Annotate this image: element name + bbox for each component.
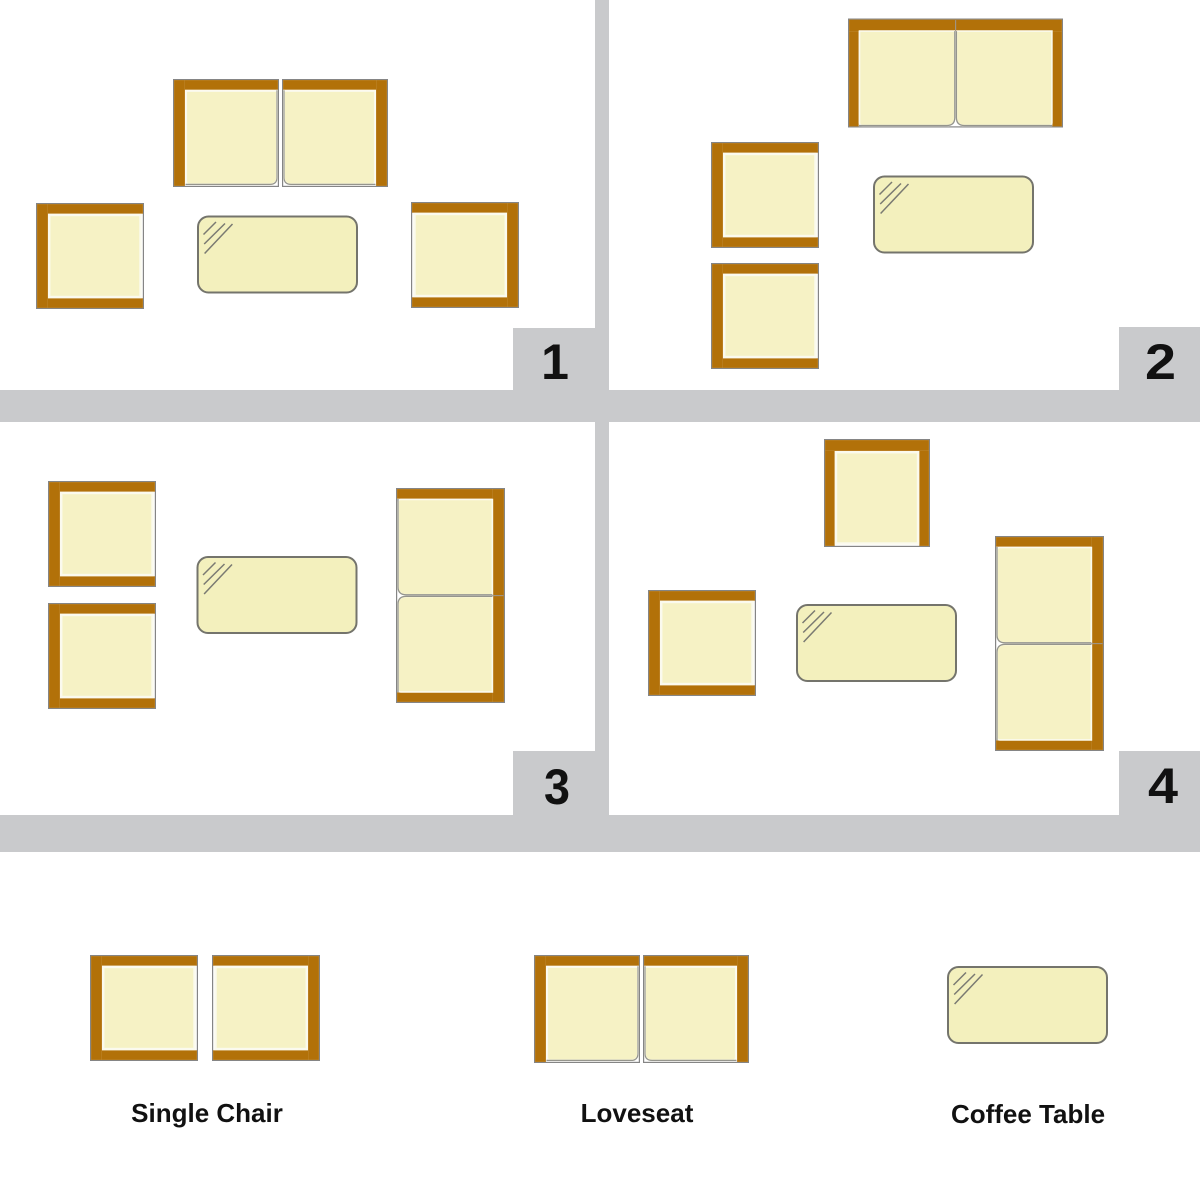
svg-text:1: 1 [541,334,569,390]
svg-text:4: 4 [1148,758,1178,814]
svg-text:2: 2 [1145,334,1176,390]
svg-text:Single Chair: Single Chair [131,1098,283,1128]
svg-text:3: 3 [544,759,570,815]
svg-text:Loveseat: Loveseat [581,1098,694,1128]
svg-text:Coffee Table: Coffee Table [951,1099,1105,1129]
